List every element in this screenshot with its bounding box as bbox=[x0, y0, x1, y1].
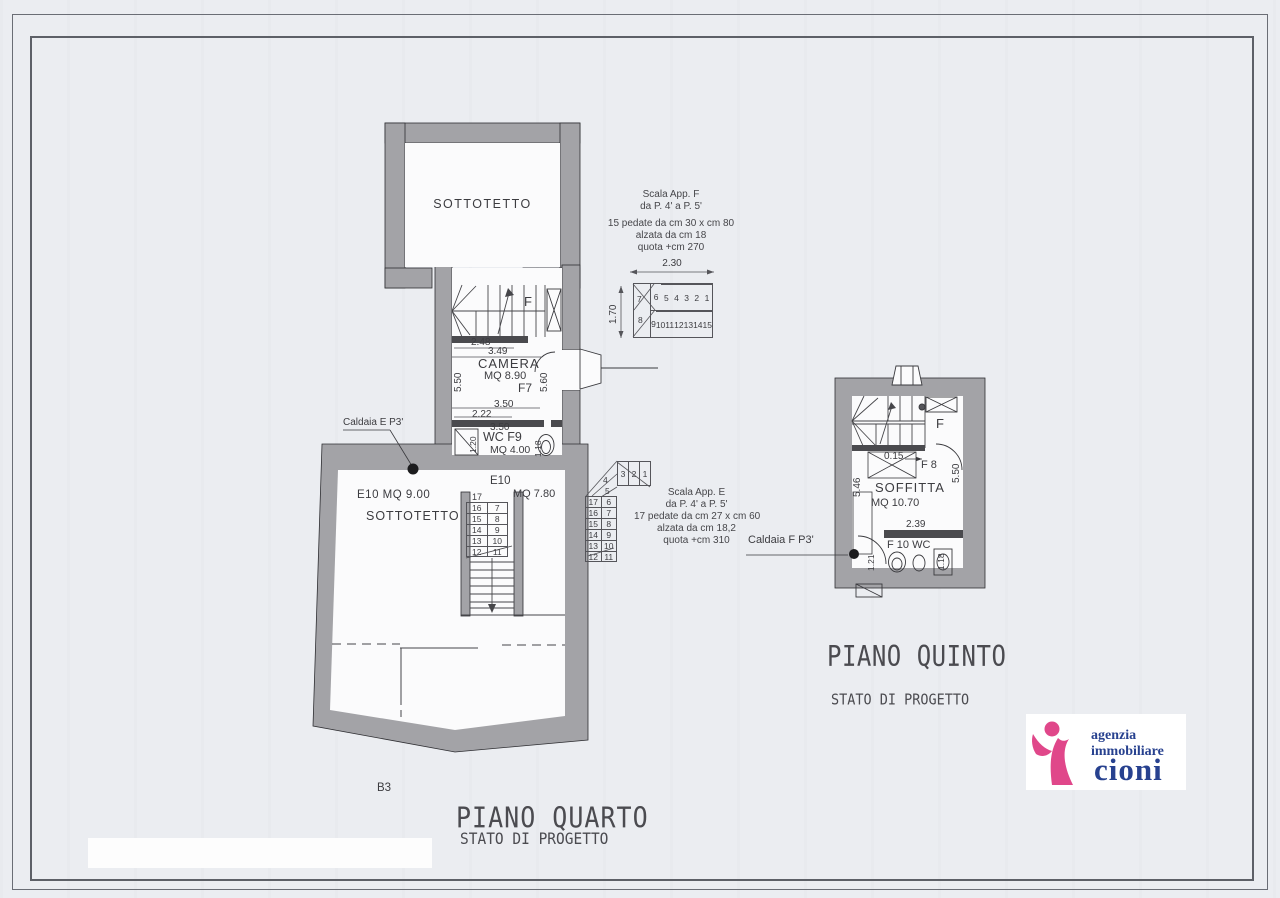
dim-550: 5.50 bbox=[453, 373, 464, 392]
tread-num: 12 bbox=[674, 311, 683, 337]
scala-f-dim-w: 2.30 bbox=[640, 258, 704, 269]
scala-f-top-run: 6 5 4 3 2 1 bbox=[651, 284, 712, 311]
stair-num: 11 bbox=[488, 546, 508, 557]
tread-num: 11 bbox=[602, 551, 617, 562]
plan-stair-grid: 16 15 14 13 12 7 8 9 10 11 bbox=[466, 502, 508, 557]
scala-f-dim-h: 1.70 bbox=[608, 305, 619, 324]
logo-figure-icon bbox=[1032, 722, 1073, 786]
scala-f-line5: quota +cm 270 bbox=[606, 242, 736, 254]
dim-arrow-t bbox=[619, 286, 624, 293]
dim-arrow-l bbox=[630, 270, 637, 275]
stair-num: 10 bbox=[488, 535, 508, 546]
scala-e-line2: da P. 4' a P. 5' bbox=[634, 499, 759, 511]
scala-e-col-left: 17 16 15 14 13 12 bbox=[586, 497, 601, 561]
logo-line-cioni: cioni bbox=[1094, 752, 1163, 788]
plan5-divider bbox=[884, 530, 963, 538]
plan-stair-grid-left: 16 15 14 13 12 bbox=[467, 503, 487, 556]
caldaia-f-label: Caldaia F P3' bbox=[748, 534, 814, 546]
dim-239: 2.39 bbox=[906, 519, 925, 530]
tread-num: 15 bbox=[703, 311, 712, 337]
tread-num: 3 bbox=[682, 284, 692, 310]
tread-num: 7 bbox=[602, 507, 617, 518]
subtitle-quinto: STATO DI PROGETTO bbox=[831, 691, 969, 709]
room-code-area-e10: E10 MQ 9.00 bbox=[357, 489, 430, 501]
scala-f-note: Scala App. F da P. 4' a P. 5' 15 pedate … bbox=[606, 189, 736, 254]
tread-num: 15 bbox=[586, 518, 601, 529]
plan-linework bbox=[0, 0, 1280, 898]
room-label-soffitta: SOFFITTA bbox=[875, 480, 945, 495]
tread-num: 10 bbox=[656, 311, 665, 337]
logo-line-agenzia: agenzia bbox=[1091, 728, 1136, 744]
dim-118-plan5: 1.18 bbox=[936, 553, 946, 570]
room-label-sottotetto-lower: SOTTOTETTO bbox=[366, 509, 460, 523]
scala-f-line4: alzata da cm 18 bbox=[606, 230, 736, 242]
scala-f-line2: da P. 4' a P. 5' bbox=[606, 201, 736, 213]
tread-num: 1 bbox=[639, 462, 650, 485]
landing-area: MQ 7.80 bbox=[513, 488, 555, 500]
room-label-camera: CAMERA bbox=[478, 356, 540, 371]
winder-num: 5 bbox=[605, 486, 610, 496]
scala-f-diagram: 7 8 6 5 4 3 2 1 9 10 11 12 13 14 15 bbox=[633, 283, 713, 338]
dim-560: 5.60 bbox=[539, 373, 550, 392]
scala-e-line5: quota +cm 310 bbox=[634, 535, 759, 547]
dim-arrow-r bbox=[707, 270, 714, 275]
dim-arrow-b bbox=[619, 331, 624, 338]
scala-f-runs: 6 5 4 3 2 1 9 10 11 12 13 14 15 bbox=[651, 284, 712, 337]
camera-code: F7 bbox=[518, 381, 532, 395]
scala-f-winder-box: 7 8 bbox=[634, 284, 651, 337]
tread-num: 4 bbox=[671, 284, 681, 310]
title-piano-quinto: PIANO QUINTO bbox=[827, 640, 1006, 673]
room-label-sottotetto-upper: SOTTOTETTO bbox=[400, 197, 565, 211]
wc-area: MQ 4.00 bbox=[490, 444, 530, 456]
plan5-chimney bbox=[892, 366, 922, 385]
scala-e-title: Scala App. E bbox=[634, 487, 759, 499]
tread-num: 10 bbox=[602, 540, 617, 551]
stair-num: 13 bbox=[467, 535, 487, 546]
tread-num: 3 bbox=[618, 462, 628, 485]
plan5-stair-letter: F bbox=[936, 416, 944, 431]
scala-f-line3: 15 pedate da cm 30 x cm 80 bbox=[606, 218, 736, 230]
tread-num: 16 bbox=[586, 507, 601, 518]
tread-num: 13 bbox=[684, 311, 693, 337]
dim-350a: 3.50 bbox=[494, 399, 513, 410]
tread-num: 2 bbox=[692, 284, 702, 310]
stair-num: 15 bbox=[467, 513, 487, 524]
caldaia-e-label: Caldaia E P3' bbox=[343, 417, 403, 428]
tread-num: 5 bbox=[661, 284, 671, 310]
stair-num-17: 17 bbox=[472, 492, 482, 502]
dim-546: 5.46 bbox=[852, 478, 863, 497]
landing-code: E10 bbox=[490, 475, 510, 487]
stair-num: 8 bbox=[488, 513, 508, 524]
label-f8: F 8 bbox=[921, 459, 937, 471]
stair-letter-f: F bbox=[524, 294, 532, 309]
stair-num: 12 bbox=[467, 546, 487, 557]
tread-num: 14 bbox=[586, 529, 601, 540]
scala-e-line3: 17 pedate da cm 27 x cm 60 bbox=[634, 511, 759, 523]
tread-num: 12 bbox=[586, 551, 601, 562]
dim-015: 0.15 bbox=[884, 451, 903, 462]
tread-num: 2 bbox=[628, 462, 639, 485]
plan-stair-grid-right: 7 8 9 10 11 bbox=[487, 503, 508, 556]
tread-num: 8 bbox=[602, 518, 617, 529]
window-icon bbox=[547, 289, 561, 331]
redaction-box bbox=[88, 838, 432, 868]
tread-num: 1 bbox=[702, 284, 712, 310]
sheet-code: B3 bbox=[377, 782, 391, 794]
scala-e-note: Scala App. E da P. 4' a P. 5' 17 pedate … bbox=[634, 487, 759, 547]
tread-num: 6 bbox=[602, 497, 617, 507]
dim-118-wc: 1.18 bbox=[533, 440, 543, 457]
dim-120: 1.20 bbox=[468, 436, 478, 453]
scala-f-bottom-run: 9 10 11 12 13 14 15 bbox=[651, 311, 712, 337]
scala-e-col-right: 6 7 8 9 10 11 bbox=[601, 497, 617, 561]
tread-num: 9 bbox=[602, 529, 617, 540]
room-label-wc-f9: WC F9 bbox=[483, 430, 522, 444]
scala-e-column: 17 16 15 14 13 12 6 7 8 9 10 11 bbox=[585, 496, 617, 562]
scala-e-top-run: 3 2 1 bbox=[617, 461, 651, 486]
stair-num: 9 bbox=[488, 524, 508, 535]
scala-e-line4: alzata da cm 18,2 bbox=[634, 523, 759, 535]
title-piano-quarto: PIANO QUARTO bbox=[456, 801, 649, 834]
winder-num: 4 bbox=[603, 475, 608, 485]
floorplan-sheet: SOTTOTETTO F 2.48 3.49 CAMERA MQ 8.90 F7… bbox=[0, 0, 1280, 898]
winder-num: 8 bbox=[638, 315, 643, 325]
winder-num: 7 bbox=[637, 294, 642, 304]
subtitle-quarto: STATO DI PROGETTO bbox=[460, 831, 608, 849]
tread-num: 6 bbox=[651, 284, 661, 310]
tread-num: 13 bbox=[586, 540, 601, 551]
tread-num: 11 bbox=[665, 311, 674, 337]
room-label-f10wc: F 10 WC bbox=[887, 539, 930, 551]
dim-222: 2.22 bbox=[472, 409, 491, 420]
stair-num: 16 bbox=[467, 503, 487, 513]
dim-550-right: 5.50 bbox=[951, 464, 962, 483]
scala-f-title: Scala App. F bbox=[606, 189, 736, 201]
stair-num: 14 bbox=[467, 524, 487, 535]
tread-num: 14 bbox=[693, 311, 702, 337]
tread-num: 17 bbox=[586, 497, 601, 507]
dim-121: 1.21 bbox=[866, 554, 876, 571]
soffitta-area: MQ 10.70 bbox=[871, 497, 919, 509]
stair-num: 7 bbox=[488, 503, 508, 513]
